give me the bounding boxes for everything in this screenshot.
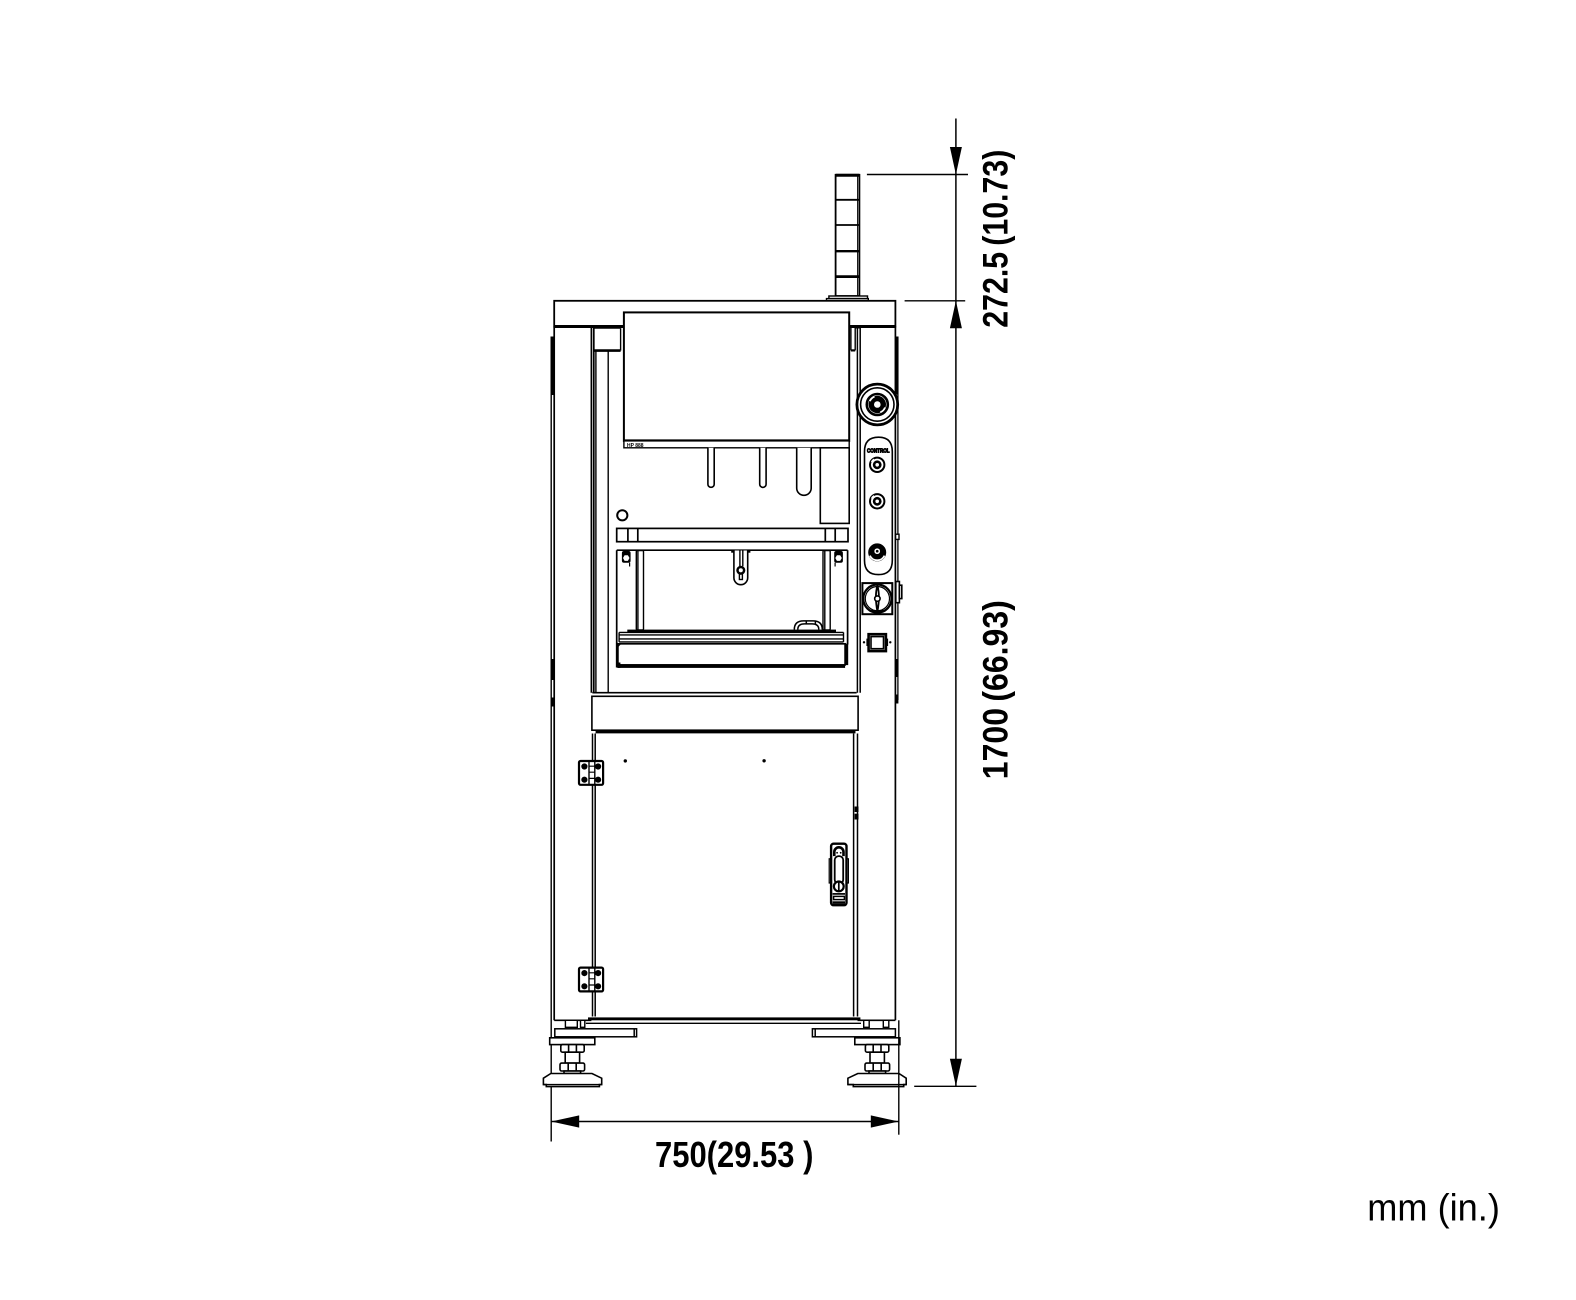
svg-text:272.5 (10.73): 272.5 (10.73) bbox=[977, 150, 1016, 328]
svg-text:HP 888: HP 888 bbox=[627, 443, 644, 449]
svg-text:750(29.53 ): 750(29.53 ) bbox=[655, 1134, 813, 1175]
svg-text:mm (in.): mm (in.) bbox=[1367, 1188, 1500, 1230]
svg-text:1700 (66.93): 1700 (66.93) bbox=[977, 600, 1016, 779]
svg-text:CONTROL: CONTROL bbox=[867, 448, 890, 454]
